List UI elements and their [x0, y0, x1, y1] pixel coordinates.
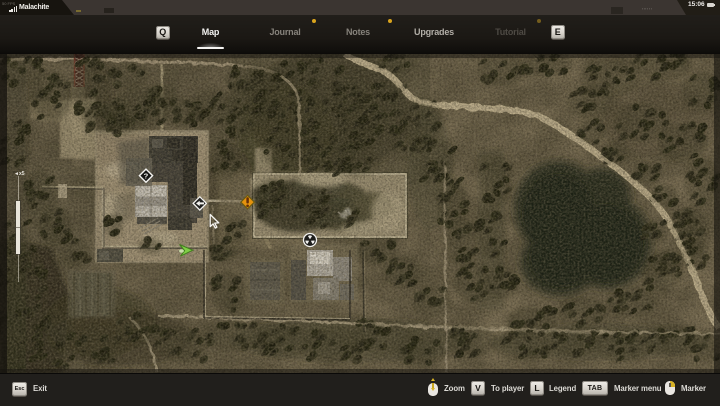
svg-text:?: ?	[144, 172, 149, 181]
